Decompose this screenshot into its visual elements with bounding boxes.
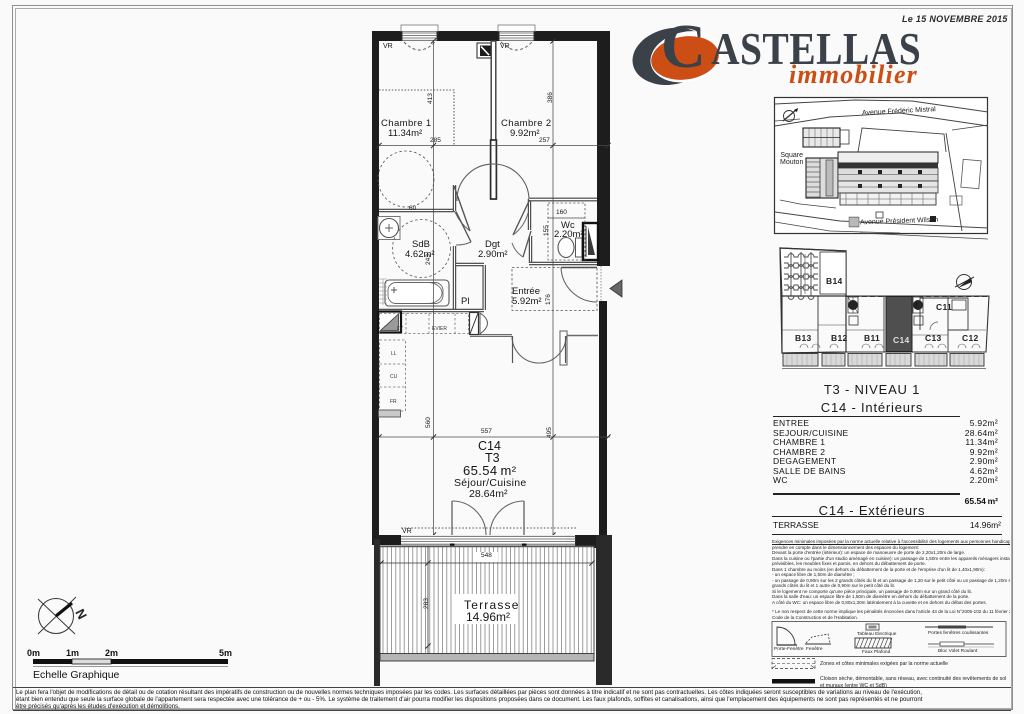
svg-text:N: N <box>72 606 90 621</box>
